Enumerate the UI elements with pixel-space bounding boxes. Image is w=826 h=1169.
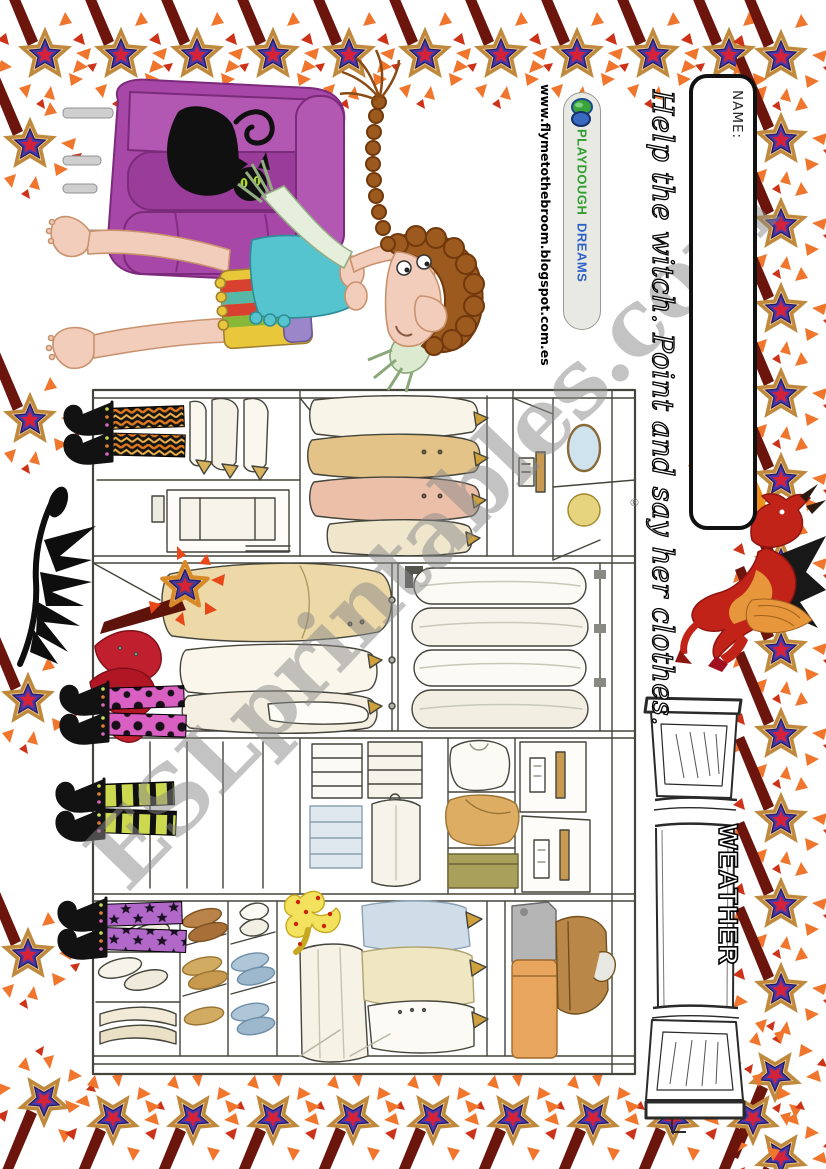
couch-scene xyxy=(47,50,485,392)
weather-label: WEATHER xyxy=(712,824,743,966)
witch-boot-icon xyxy=(65,431,112,463)
magic-wand-icon xyxy=(0,61,82,199)
logo-word-playdough: PLAYDOUGH xyxy=(575,129,590,215)
instruction-text: Help the witch. Point and say her clothe… xyxy=(646,90,680,694)
playdough-dreams-logo: PLAYDOUGH DREAMS xyxy=(563,92,601,330)
magic-wand-icon xyxy=(0,0,97,109)
magic-wand-icon xyxy=(385,1064,485,1169)
magic-wand-icon xyxy=(465,1064,565,1169)
witch-boot-icon xyxy=(65,402,112,434)
magic-wand-icon xyxy=(225,1064,325,1169)
worksheet-page: ESLprintables.com NAME: Help the witch. … xyxy=(0,0,826,1169)
broom-icon xyxy=(20,484,96,664)
name-label: NAME: xyxy=(729,90,745,139)
witch-boot-icon xyxy=(59,898,106,930)
magic-wand-icon xyxy=(545,1064,645,1169)
witch-boot-icon xyxy=(61,682,108,714)
magic-wand-icon xyxy=(0,1046,96,1169)
registered-trademark: ® xyxy=(629,496,640,509)
magic-wand-icon xyxy=(145,1064,245,1169)
website-url: www.flymetothebroom.blogspot.com.es xyxy=(538,84,553,366)
magic-wand-icon xyxy=(65,1064,165,1169)
name-field-box: NAME: xyxy=(689,74,757,530)
logo-word-dreams: DREAMS xyxy=(575,223,590,282)
magic-wand-icon xyxy=(305,1064,405,1169)
logo-mark-icon xyxy=(569,97,595,129)
witch-boot-icon xyxy=(61,711,108,743)
